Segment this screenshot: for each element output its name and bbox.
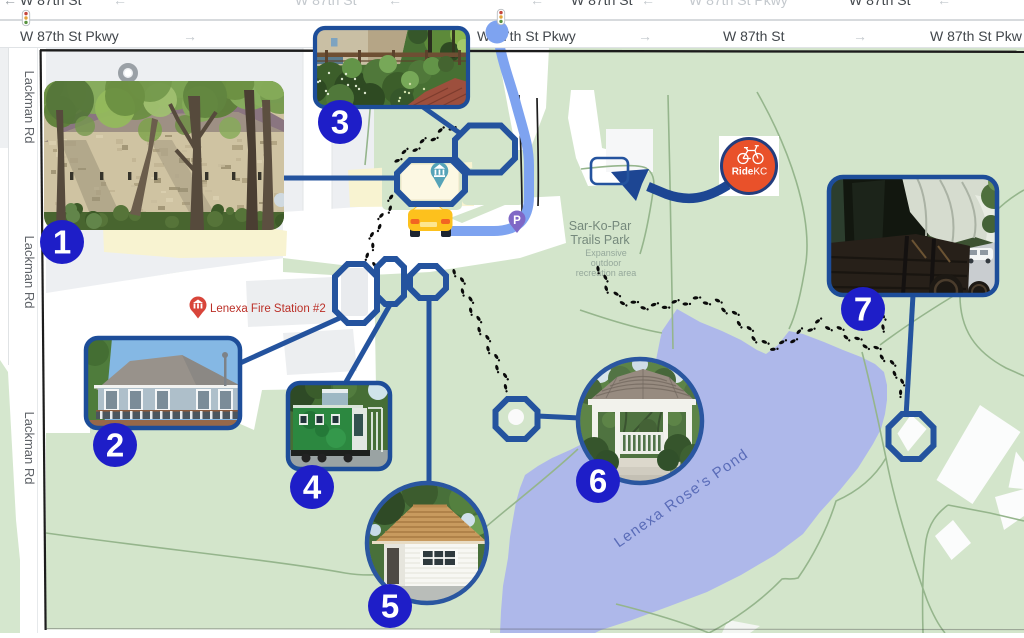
svg-text:←: ←: [937, 0, 951, 8]
svg-text:W 87th St: W 87th St: [723, 28, 785, 44]
svg-text:←: ←: [641, 0, 655, 8]
svg-text:Lackman Rd: Lackman Rd: [22, 236, 37, 309]
svg-text:Trails Park: Trails Park: [570, 233, 630, 247]
svg-text:W 87th St Pkwy: W 87th St Pkwy: [20, 28, 119, 44]
svg-text:←: ←: [388, 0, 402, 8]
svg-text:W 87th St: W 87th St: [295, 0, 357, 8]
svg-text:Lackman Rd: Lackman Rd: [22, 412, 37, 485]
svg-text:6: 6: [589, 463, 607, 500]
svg-text:←: ←: [530, 0, 544, 8]
svg-text:2: 2: [106, 427, 124, 464]
svg-text:5: 5: [381, 588, 399, 625]
svg-text:7: 7: [854, 291, 872, 328]
svg-text:W 87th St: W 87th St: [571, 0, 633, 8]
svg-text:W 87th St Pkw: W 87th St Pkw: [930, 28, 1023, 44]
svg-text:4: 4: [303, 469, 322, 506]
svg-text:Expansive: Expansive: [585, 248, 627, 258]
svg-text:Lackman Rd: Lackman Rd: [22, 71, 37, 144]
svg-text:←: ←: [3, 0, 17, 8]
svg-text:W 87th St: W 87th St: [20, 0, 82, 8]
svg-text:outdoor: outdoor: [591, 258, 622, 268]
svg-text:W 87th St Pkwy: W 87th St Pkwy: [689, 0, 788, 8]
svg-text:P: P: [513, 215, 521, 227]
svg-text:→: →: [638, 28, 652, 44]
svg-text:←: ←: [113, 0, 127, 8]
svg-text:3: 3: [331, 104, 349, 141]
svg-text:1: 1: [53, 224, 71, 261]
svg-text:→: →: [853, 28, 867, 44]
svg-text:→: →: [183, 28, 197, 44]
svg-text:Lenexa Fire Station #2: Lenexa Fire Station #2: [210, 303, 326, 315]
svg-text:Sar-Ko-Par: Sar-Ko-Par: [569, 219, 632, 233]
svg-text:RideKC: RideKC: [732, 167, 768, 178]
svg-text:W 87th St: W 87th St: [849, 0, 911, 8]
